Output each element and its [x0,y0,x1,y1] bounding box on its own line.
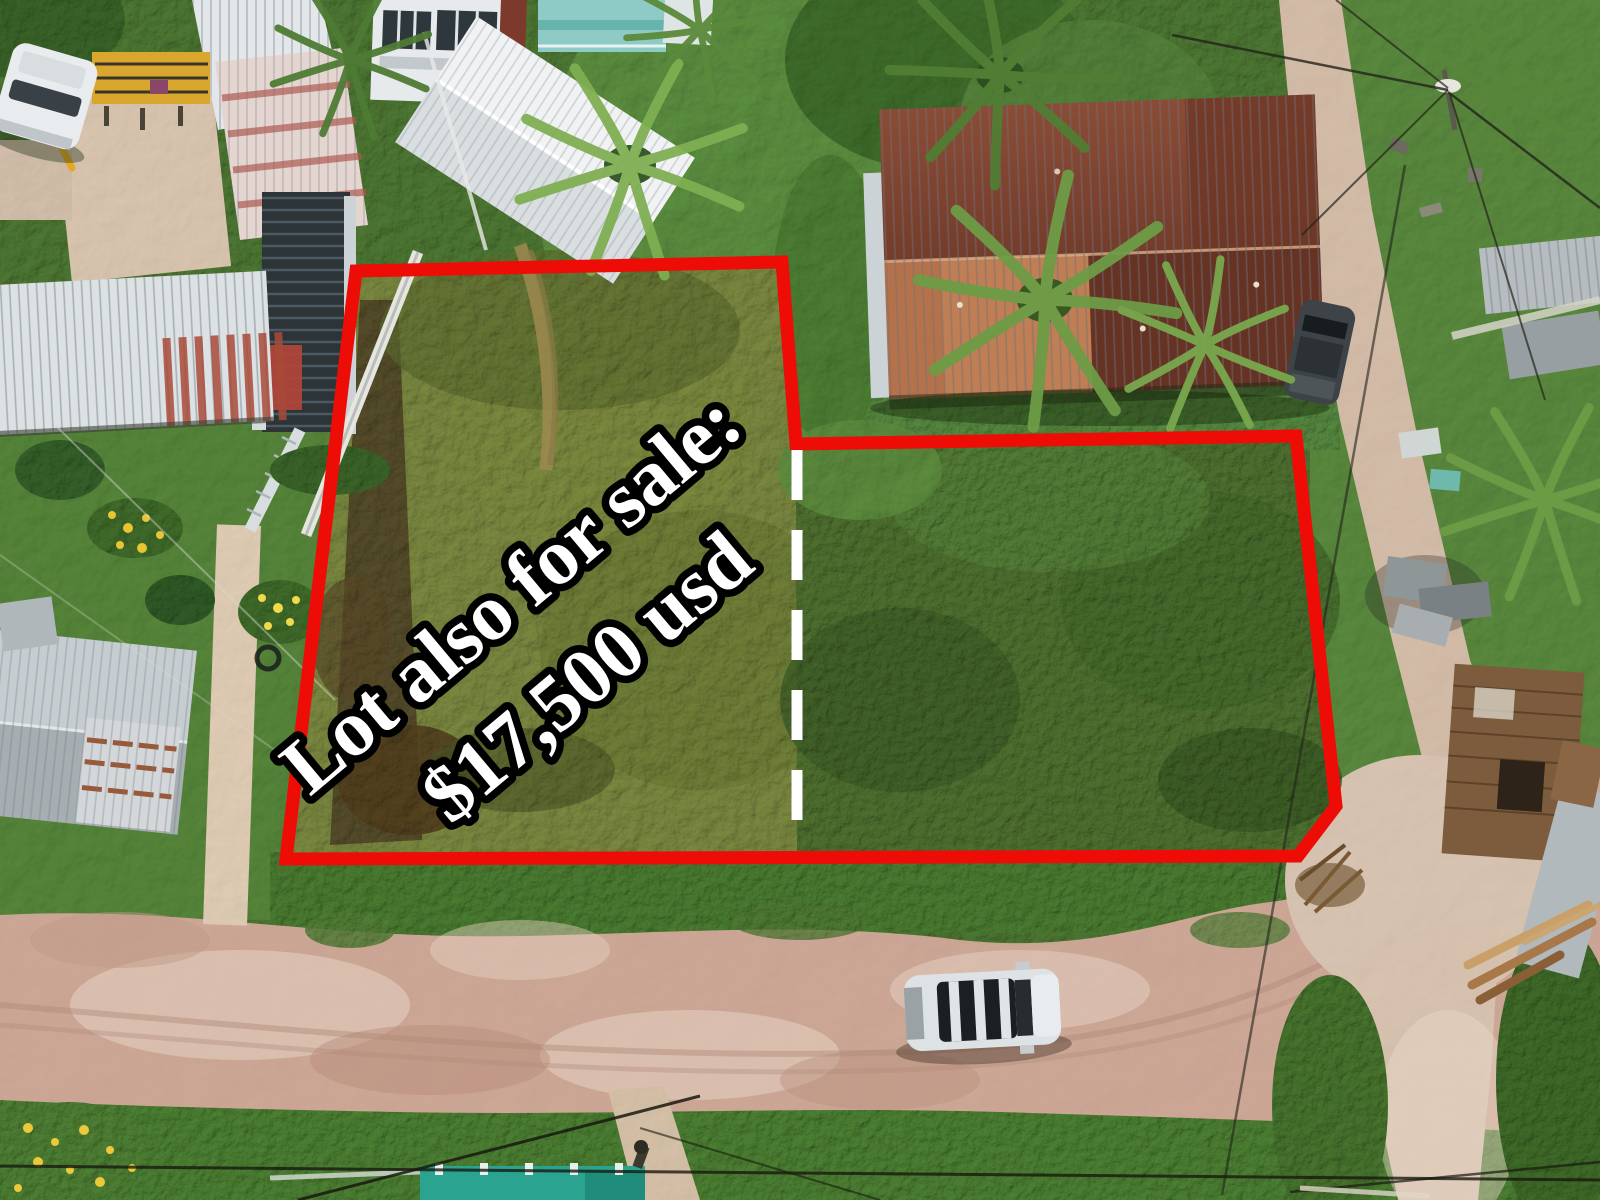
photo-canvas: Lot also for sale: $17,500 usd [0,0,1600,1200]
utility-pole-top [634,1140,648,1154]
left-silver-roof-building [0,270,287,437]
gabled-gray-building [0,630,197,835]
suv-hood [1030,974,1061,1037]
white-suv [892,959,1073,1068]
suv-windshield [1014,979,1033,1036]
rust-striped-roof-section [157,332,286,426]
overgrown-lot-right [778,420,1342,857]
aerial-drone-photo: Lot also for sale: $17,500 usd [0,0,1600,1200]
